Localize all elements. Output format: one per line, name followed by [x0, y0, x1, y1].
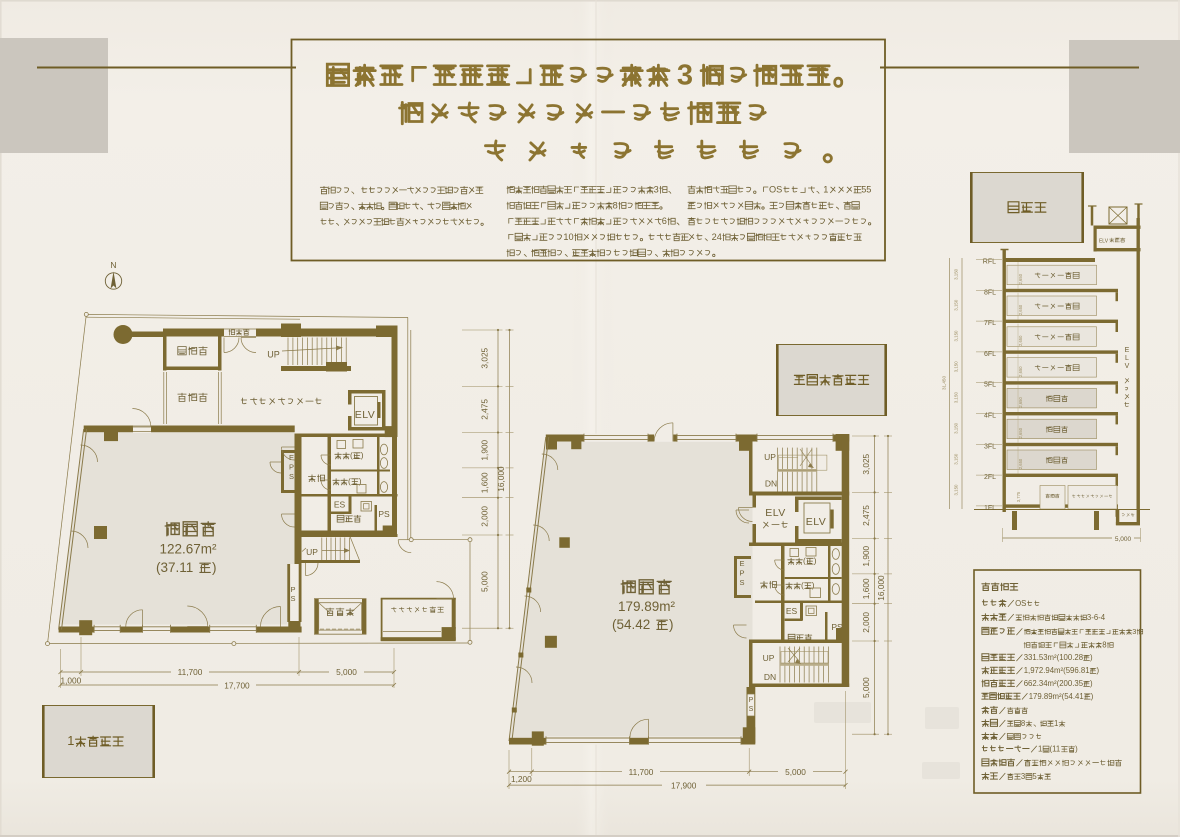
- svg-text:17,900: 17,900: [671, 780, 697, 790]
- svg-text:): ): [212, 560, 217, 575]
- svg-text:6: 6: [662, 216, 667, 226]
- svg-text:(: (: [803, 556, 806, 566]
- svg-text:2,475: 2,475: [861, 505, 871, 526]
- svg-text:UP: UP: [306, 547, 318, 557]
- svg-text:1,000: 1,000: [61, 676, 82, 686]
- svg-text:662.34m²(200.35: 662.34m²(200.35: [1024, 679, 1084, 688]
- svg-text:3,775: 3,775: [1016, 491, 1021, 502]
- svg-text:S: S: [739, 578, 744, 587]
- svg-text:P: P: [289, 463, 294, 472]
- svg-text:122.67m²: 122.67m²: [159, 542, 217, 557]
- svg-text:ELV: ELV: [1099, 239, 1109, 245]
- svg-text:3,025: 3,025: [861, 453, 871, 474]
- svg-text:3,150: 3,150: [954, 484, 959, 496]
- svg-text:DN: DN: [765, 479, 777, 489]
- svg-text:OS: OS: [769, 185, 782, 195]
- svg-text:3: 3: [654, 185, 659, 195]
- svg-text:3: 3: [1021, 772, 1025, 781]
- svg-text:V: V: [1125, 363, 1130, 370]
- svg-text:ES: ES: [334, 500, 346, 510]
- svg-text:16,000: 16,000: [496, 466, 506, 492]
- svg-text:ELV: ELV: [355, 409, 376, 421]
- svg-text:11,700: 11,700: [178, 667, 203, 677]
- svg-text:5,000: 5,000: [336, 667, 357, 677]
- svg-text:3,150: 3,150: [954, 268, 959, 280]
- svg-text:E: E: [739, 559, 744, 568]
- svg-text:S: S: [289, 472, 294, 481]
- svg-text:10: 10: [563, 232, 573, 242]
- svg-text:(: (: [348, 476, 351, 486]
- svg-text:179.89m²(54.41: 179.89m²(54.41: [1029, 692, 1084, 701]
- svg-text:331.53m²(100.28: 331.53m²(100.28: [1024, 653, 1083, 662]
- svg-text:5,000: 5,000: [1115, 536, 1132, 543]
- svg-text:): ): [814, 556, 817, 566]
- svg-text:1: 1: [823, 185, 828, 195]
- svg-text:11,700: 11,700: [629, 767, 654, 777]
- svg-text:3-6-4: 3-6-4: [1087, 613, 1106, 622]
- svg-text:55: 55: [861, 185, 871, 195]
- svg-text:2,650: 2,650: [1018, 458, 1023, 469]
- svg-text:E: E: [1125, 347, 1130, 354]
- svg-text:3,150: 3,150: [954, 453, 959, 465]
- svg-text:P: P: [749, 697, 754, 704]
- svg-text:1,972.94m²(596.81: 1,972.94m²(596.81: [1024, 666, 1090, 675]
- svg-text:1,900: 1,900: [861, 545, 871, 566]
- svg-text:3,150: 3,150: [954, 330, 959, 342]
- svg-text:2,650: 2,650: [1018, 304, 1023, 315]
- svg-text:8: 8: [1021, 719, 1025, 728]
- svg-text:N: N: [110, 260, 116, 270]
- svg-text:(: (: [801, 580, 804, 590]
- svg-text:L: L: [1125, 355, 1129, 362]
- svg-text:3,150: 3,150: [954, 299, 959, 311]
- svg-text:2,650: 2,650: [1018, 273, 1023, 284]
- svg-text:P: P: [290, 585, 295, 594]
- svg-text:): ): [1090, 653, 1093, 662]
- svg-text:2,475: 2,475: [480, 399, 490, 420]
- svg-text:2,000: 2,000: [480, 506, 490, 527]
- svg-text:(37.11: (37.11: [156, 560, 193, 575]
- svg-text:DN: DN: [764, 672, 776, 682]
- svg-text:ELV: ELV: [806, 516, 827, 528]
- svg-text:): ): [669, 617, 674, 632]
- svg-text:ELV: ELV: [765, 507, 786, 519]
- svg-text:3: 3: [1132, 627, 1136, 636]
- svg-text:1,200: 1,200: [511, 774, 532, 784]
- svg-text:1,900: 1,900: [480, 439, 490, 460]
- svg-text:UP: UP: [764, 452, 776, 462]
- svg-text:5: 5: [1032, 772, 1037, 781]
- svg-text:5,000: 5,000: [785, 767, 806, 777]
- svg-text:16,000: 16,000: [876, 575, 886, 601]
- svg-text:P: P: [739, 569, 744, 578]
- svg-text:2,650: 2,650: [1018, 427, 1023, 438]
- svg-text:1: 1: [67, 733, 74, 748]
- svg-text:(11: (11: [1050, 745, 1061, 754]
- svg-text:3,150: 3,150: [954, 361, 959, 373]
- svg-text:2,650: 2,650: [1018, 366, 1023, 377]
- svg-text:UP: UP: [267, 350, 280, 360]
- svg-text:8: 8: [1102, 640, 1106, 649]
- svg-text:ES: ES: [786, 606, 798, 616]
- svg-text:): ): [812, 580, 815, 590]
- svg-text:3,025: 3,025: [480, 347, 490, 368]
- svg-text:S: S: [290, 594, 295, 603]
- svg-text:5,000: 5,000: [861, 677, 871, 698]
- svg-text:24: 24: [712, 232, 722, 242]
- svg-text:1: 1: [1054, 719, 1058, 728]
- svg-text:): ): [361, 450, 364, 460]
- svg-text:179.89m²: 179.89m²: [618, 599, 676, 614]
- svg-text:OS: OS: [1015, 599, 1026, 608]
- svg-text:17,700: 17,700: [224, 680, 250, 690]
- svg-text:1: 1: [1038, 745, 1042, 754]
- svg-text:): ): [1091, 692, 1094, 701]
- svg-text:PS: PS: [378, 509, 390, 519]
- svg-text:E: E: [289, 453, 294, 462]
- svg-text:(: (: [350, 450, 353, 460]
- svg-text:): ): [1097, 666, 1100, 675]
- svg-text:3,150: 3,150: [954, 392, 959, 404]
- svg-text:): ): [1090, 679, 1093, 688]
- svg-text:): ): [1075, 745, 1078, 754]
- svg-text:3,150: 3,150: [954, 422, 959, 434]
- svg-text:31,450: 31,450: [942, 376, 947, 390]
- svg-text:2,650: 2,650: [1018, 335, 1023, 346]
- svg-text:1,600: 1,600: [861, 578, 871, 599]
- svg-text:(54.42: (54.42: [612, 617, 650, 632]
- svg-text:8: 8: [613, 200, 618, 210]
- svg-text:5,000: 5,000: [480, 571, 490, 592]
- svg-text:2,000: 2,000: [861, 612, 871, 633]
- svg-text:2,650: 2,650: [1018, 396, 1023, 407]
- svg-text:1,600: 1,600: [480, 472, 490, 493]
- svg-text:3: 3: [677, 60, 693, 92]
- svg-text:S: S: [749, 706, 754, 713]
- svg-text:UP: UP: [763, 653, 775, 663]
